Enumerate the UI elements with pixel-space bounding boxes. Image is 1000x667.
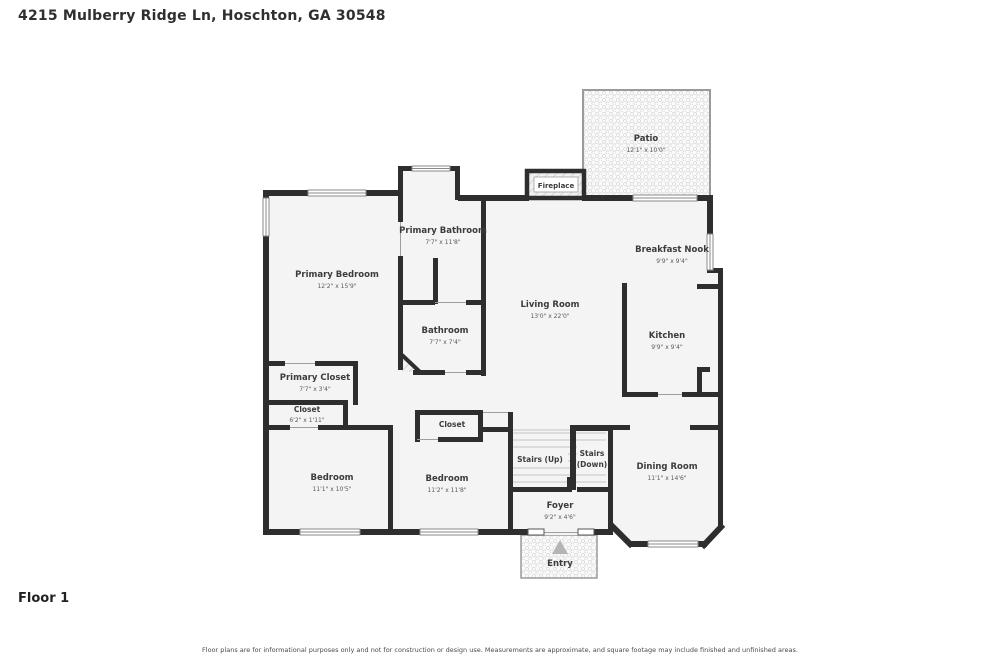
patio-dims: 12'1" x 10'0"	[626, 147, 665, 154]
stairs-down-label: Stairs	[580, 449, 605, 458]
patio-label: Patio	[634, 134, 659, 144]
primary-bathroom-label: Primary Bathroom	[399, 226, 487, 236]
primary-closet-dims: 7'7" x 3'4"	[299, 386, 331, 393]
stairs-up-label: Stairs (Up)	[517, 455, 563, 464]
primary-bathroom-dims: 7'7" x 11'8"	[425, 239, 461, 246]
disclaimer-text: Floor plans are for informational purpos…	[0, 646, 1000, 654]
living-room-dims: 13'0" x 22'0"	[530, 313, 569, 320]
bedroom-b-label: Bedroom	[425, 474, 468, 484]
floor-plan: Patio 12'1" x 10'0" Fireplace Primary Ba…	[0, 0, 1000, 667]
primary-bedroom-dims: 12'2" x 15'9"	[317, 283, 356, 290]
floor-plan-page: 4215 Mulberry Ridge Ln, Hoschton, GA 305…	[0, 0, 1000, 667]
page-title: 4215 Mulberry Ridge Ln, Hoschton, GA 305…	[18, 8, 386, 24]
closet-b-label: Closet	[439, 420, 466, 429]
kitchen-label: Kitchen	[649, 331, 685, 341]
bedroom-b-dims: 11'2" x 11'8"	[427, 487, 466, 494]
closet-a-label: Closet	[294, 405, 321, 414]
breakfast-nook-dims: 9'9" x 9'4"	[656, 258, 688, 265]
foyer-dims: 9'2" x 4'6"	[544, 514, 576, 521]
dining-room-label: Dining Room	[636, 462, 697, 472]
bathroom-dims: 7'7" x 7'4"	[429, 339, 461, 346]
breakfast-nook-label: Breakfast Nook	[635, 245, 709, 255]
entry-porch	[521, 535, 597, 578]
stairs-down-label2: (Down)	[577, 460, 608, 469]
kitchen-dims: 9'9" x 9'4"	[651, 344, 683, 351]
fireplace-label: Fireplace	[538, 182, 575, 190]
primary-closet-label: Primary Closet	[280, 373, 351, 383]
closet-a-dims: 6'2" x 1'11"	[289, 417, 325, 424]
bedroom-a-label: Bedroom	[310, 473, 353, 483]
bedroom-a-dims: 11'1" x 10'5"	[312, 486, 351, 493]
bathroom-label: Bathroom	[421, 326, 468, 336]
foyer-label: Foyer	[547, 501, 575, 511]
entry-label: Entry	[547, 559, 573, 569]
primary-bedroom-label: Primary Bedroom	[295, 270, 379, 280]
floor-label: Floor 1	[18, 591, 69, 606]
living-room-label: Living Room	[521, 300, 580, 310]
dining-room-dims: 11'1" x 14'6"	[647, 475, 686, 482]
